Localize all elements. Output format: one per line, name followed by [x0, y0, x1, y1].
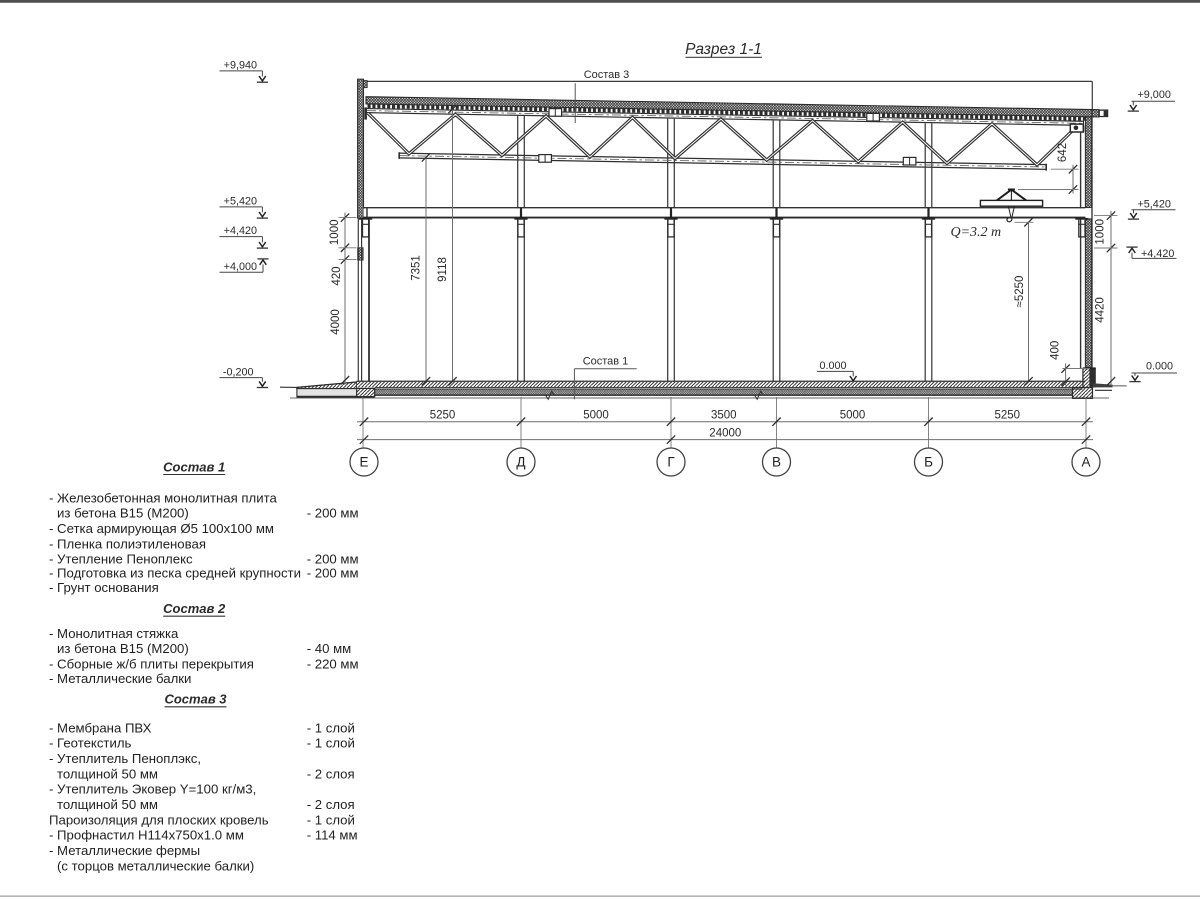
svg-text:+9,000: +9,000 — [1138, 89, 1171, 101]
svg-text:толщиной 50 мм: толщиной 50 мм — [57, 797, 158, 812]
svg-text:- 1 слой: - 1 слой — [307, 736, 355, 751]
svg-text:Е: Е — [359, 455, 368, 470]
svg-text:- Металлические балки: - Металлические балки — [49, 671, 191, 686]
svg-text:5250: 5250 — [430, 410, 456, 422]
svg-text:+4,000: +4,000 — [224, 261, 257, 273]
svg-text:- Утепление Пеноплекс: - Утепление Пеноплекс — [49, 552, 193, 567]
svg-text:- 1 слой: - 1 слой — [307, 812, 355, 827]
svg-text:1000: 1000 — [329, 220, 341, 246]
svg-text:- Подготовка из песка средней: - Подготовка из песка средней крупности — [49, 566, 301, 581]
svg-text:+5,420: +5,420 — [1138, 198, 1171, 210]
svg-text:- Монолитная стяжка: - Монолитная стяжка — [49, 626, 179, 641]
svg-text:- 200 мм: - 200 мм — [307, 506, 359, 521]
svg-text:В: В — [772, 455, 781, 470]
svg-text:+5,420: +5,420 — [224, 195, 257, 207]
svg-text:- Профнастил Н114х750х1.0 мм: - Профнастил Н114х750х1.0 мм — [49, 828, 244, 843]
svg-text:- Сетка армирующая Ø5 100х100: - Сетка армирующая Ø5 100х100 мм — [49, 521, 274, 536]
svg-text:Состав 3: Состав 3 — [584, 69, 630, 81]
svg-text:642: 642 — [1057, 143, 1069, 162]
svg-text:4420: 4420 — [1095, 297, 1107, 323]
svg-text:9118: 9118 — [437, 257, 449, 282]
svg-text:420: 420 — [331, 266, 343, 285]
svg-text:- 2 слоя: - 2 слоя — [307, 766, 355, 781]
svg-text:1000: 1000 — [1095, 219, 1107, 245]
svg-text:- 2 слоя: - 2 слоя — [307, 797, 355, 812]
svg-text:- Металлические фермы: - Металлические фермы — [49, 843, 200, 858]
svg-text:Пароизоляция для плоских крове: Пароизоляция для плоских кровель — [49, 812, 269, 827]
svg-text:≈5250: ≈5250 — [1014, 276, 1026, 308]
svg-text:24000: 24000 — [709, 428, 741, 440]
svg-text:0.000: 0.000 — [1146, 360, 1173, 372]
svg-text:0.000: 0.000 — [819, 360, 846, 372]
svg-text:Q=3.2 т: Q=3.2 т — [951, 225, 1002, 240]
svg-text:400: 400 — [1050, 341, 1062, 360]
svg-text:- 200 мм: - 200 мм — [307, 552, 359, 567]
svg-text:- Пленка полиэтиленовая: - Пленка полиэтиленовая — [49, 536, 206, 551]
svg-text:- 220 мм: - 220 мм — [307, 657, 359, 672]
svg-text:(с торцов металлические балки): (с торцов металлические балки) — [57, 858, 254, 873]
svg-text:Б: Б — [924, 455, 933, 470]
svg-text:- 1 слой: - 1 слой — [307, 720, 355, 735]
svg-text:- 40 мм: - 40 мм — [307, 641, 352, 656]
svg-text:7351: 7351 — [411, 255, 423, 281]
svg-text:5000: 5000 — [583, 410, 609, 422]
svg-text:5000: 5000 — [840, 410, 866, 422]
svg-text:Состав 1: Состав 1 — [163, 459, 225, 474]
svg-text:3500: 3500 — [711, 410, 737, 422]
svg-text:- Грунт основания: - Грунт основания — [49, 580, 159, 595]
svg-text:- Утеплитель Пеноплэкс,: - Утеплитель Пеноплэкс, — [49, 751, 201, 766]
svg-text:Разрез 1-1: Разрез 1-1 — [685, 41, 762, 58]
svg-text:4000: 4000 — [330, 309, 342, 335]
svg-text:Д: Д — [516, 455, 525, 470]
svg-text:+4,420: +4,420 — [224, 225, 257, 237]
svg-text:толщиной 50 мм: толщиной 50 мм — [57, 766, 158, 781]
svg-text:из бетона В15 (М200): из бетона В15 (М200) — [57, 506, 189, 521]
svg-text:- Утеплитель Эковер Y=100 кг/м: - Утеплитель Эковер Y=100 кг/м3, — [49, 782, 256, 797]
svg-text:- 200 мм: - 200 мм — [307, 566, 359, 581]
svg-text:+9,940: +9,940 — [224, 59, 257, 71]
svg-text:Г: Г — [667, 455, 675, 470]
svg-text:А: А — [1081, 455, 1090, 470]
svg-text:из бетона В15 (М200): из бетона В15 (М200) — [57, 641, 189, 656]
svg-text:Состав 1: Состав 1 — [583, 355, 629, 367]
svg-text:- 114 мм: - 114 мм — [307, 828, 358, 843]
svg-text:- Железобетонная монолитная п: - Железобетонная монолитная плита — [49, 491, 278, 506]
svg-text:Состав 2: Состав 2 — [163, 601, 226, 616]
svg-text:- Мембрана ПВХ: - Мембрана ПВХ — [49, 720, 152, 735]
svg-text:5250: 5250 — [995, 410, 1021, 422]
svg-text:-0,200: -0,200 — [223, 366, 254, 378]
svg-text:Состав 3: Состав 3 — [164, 692, 227, 707]
svg-text:- Сборные ж/б плиты перекрытия: - Сборные ж/б плиты перекрытия — [49, 657, 254, 672]
svg-text:- Геотекстиль: - Геотекстиль — [49, 736, 132, 751]
